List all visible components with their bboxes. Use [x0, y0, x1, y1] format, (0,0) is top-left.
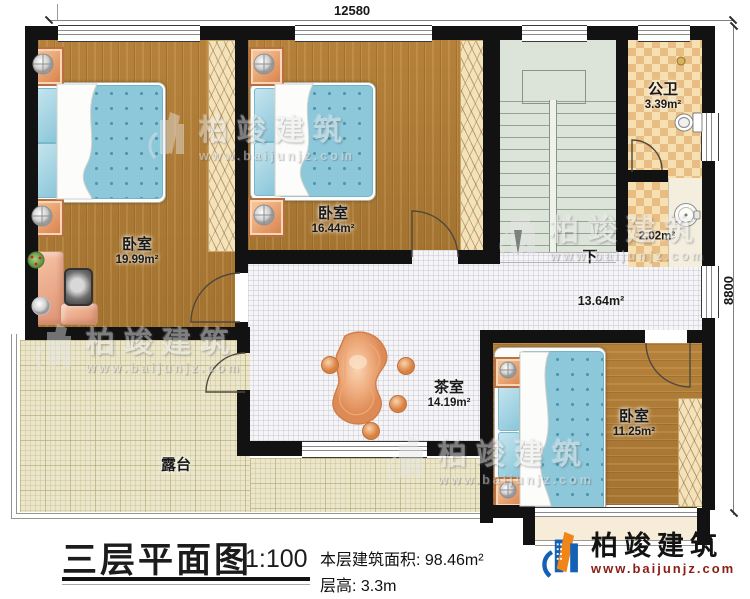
dimension-line-top [48, 20, 733, 21]
desk-horizontal [60, 303, 98, 325]
brand-name: 柏竣建筑 [591, 532, 735, 560]
stair-stringer [549, 100, 557, 252]
room-label-hall: 13.64m² [578, 294, 625, 308]
wall-bedroom1-right-upper [235, 40, 248, 273]
window-hall-right [701, 266, 719, 318]
brand-logo-icon [540, 528, 585, 580]
stair-landing-outline [522, 70, 586, 104]
stair-treads [500, 101, 616, 248]
window-bedroom2 [295, 25, 432, 42]
room-label-bedroom1: 卧室19.99m² [116, 237, 159, 267]
terrace-floor-right [250, 458, 487, 512]
plan-title: 三层平面图 [62, 532, 252, 583]
wash-area-floor [628, 182, 668, 267]
bed-bedroom2-mattress [276, 85, 373, 197]
stair-bottom-edge [500, 252, 616, 263]
wall-stair-left [483, 40, 500, 264]
brand-website: www.baijunjz.com [591, 561, 735, 576]
bed-bedroom1-mattress [58, 85, 163, 199]
title-underline [62, 577, 310, 581]
plan-scale: 1:100 [245, 545, 308, 574]
wall-bedroom3-left [480, 330, 493, 523]
bed-bedroom3-pillow-2 [498, 432, 520, 478]
window-bedroom1 [58, 25, 200, 42]
floor-height-text: 层高: 3.3m [320, 572, 396, 596]
room-label-bedroom3: 卧室11.25m² [613, 409, 655, 439]
dimension-ext-line [57, 4, 58, 21]
window-tearoom [302, 441, 427, 458]
wall-bath-divider [628, 170, 668, 182]
bed-bedroom3-mattress [519, 351, 604, 510]
wall-tearoom-left-b [237, 390, 250, 443]
bed-bedroom2-pillow-2 [254, 142, 276, 196]
stairs-down-label: 下 [582, 250, 597, 267]
wall-bedrooms-bottom-left [235, 250, 412, 264]
closet-bedroom3 [678, 398, 704, 507]
floor-plan-canvas: 卧室19.99m² 卧室16.44m² 卧室11.25m² 茶室14.19m² … [0, 0, 750, 599]
title-underline-thin [62, 584, 310, 585]
closet-bedroom2 [460, 40, 485, 252]
wall-tearoom-left-a [237, 340, 250, 353]
dimension-right-value: 8800 [721, 276, 736, 305]
bed-bedroom2-pillow-1 [254, 88, 276, 142]
wall-bedroom1-right-lower [235, 322, 248, 340]
wall-left [25, 26, 38, 340]
room-label-public-bath: 公卫3.39m² [645, 82, 681, 112]
room-label-wash-area: 2.02m² [639, 231, 675, 244]
wall-bedroom3-top-right [687, 330, 715, 343]
room-label-terrace: 露台 [161, 458, 191, 475]
nightstand [494, 357, 526, 388]
public-bath-floor [628, 40, 702, 187]
closet-bedroom1 [208, 40, 237, 252]
room-label-bedroom2: 卧室16.44m² [312, 206, 355, 236]
window-public-bath [638, 25, 690, 42]
desk-chair [64, 268, 93, 306]
wall-tearoom-bottom-left [237, 441, 302, 456]
dimension-tick [730, 509, 738, 517]
brand-logo: 柏竣建筑 www.baijunjz.com [540, 528, 735, 580]
window-bath-right [701, 113, 719, 161]
wash-counter [668, 178, 703, 267]
window-stairwell [522, 25, 587, 42]
dimension-top-value: 12580 [334, 3, 370, 18]
bed-bedroom3-pillow-1 [498, 385, 520, 431]
wall-bay-left [523, 508, 535, 545]
room-label-tearoom: 茶室14.19m² [428, 380, 471, 410]
wall-bedroom1-bottom [25, 327, 250, 340]
terrace-floor [20, 340, 250, 512]
nightstand [248, 198, 285, 237]
floor-area-text: 本层建筑面积: 98.46m² [320, 546, 484, 570]
nightstand [249, 47, 284, 86]
wall-stair-right [616, 40, 628, 252]
wall-bedroom3-top-left [480, 330, 645, 343]
nightstand [494, 477, 526, 508]
dimension-line-right [733, 26, 734, 515]
